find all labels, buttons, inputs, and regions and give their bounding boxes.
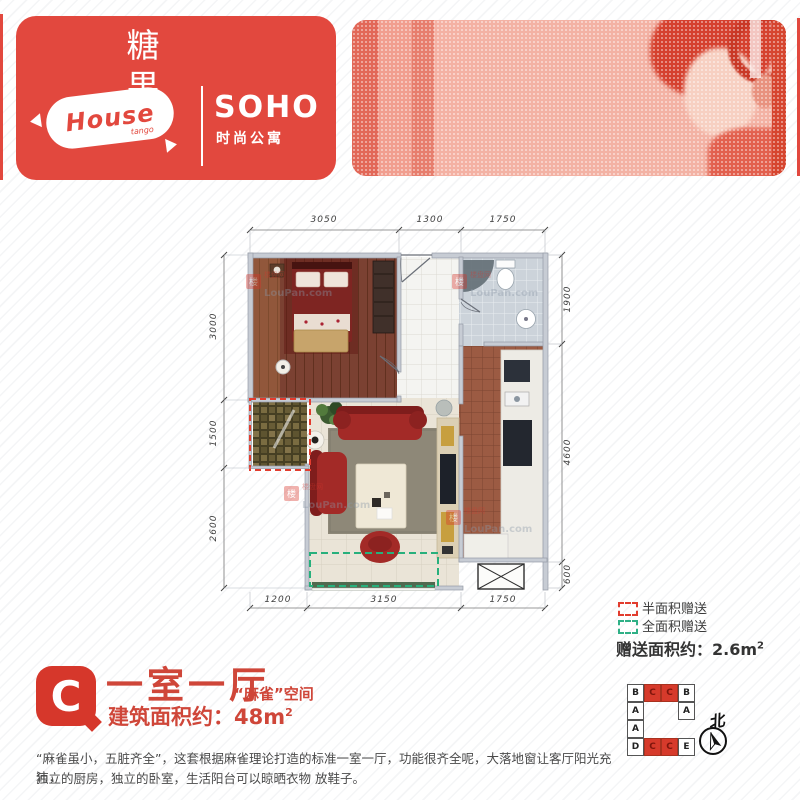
house-logo-subtext: tango: [130, 125, 154, 137]
candy-wrapper-right-icon: [165, 137, 178, 152]
dimension-label: 1500: [209, 411, 219, 455]
dimension-label: 3150: [362, 595, 406, 605]
keyplan-cell: E: [678, 738, 695, 756]
candy-wrapper-left-icon: [29, 113, 42, 128]
half-gift-label: 半面积赠送: [642, 598, 707, 617]
flue-shaft: [478, 564, 524, 589]
brand-logo-card: 糖果 er House tango SOHO 时尚公寓: [16, 16, 336, 180]
dimension-label: 1200: [256, 595, 300, 605]
dimension-label: 3000: [209, 304, 219, 348]
full-gift-swatch: [618, 620, 638, 634]
watermark-en: LouPan.com: [470, 288, 538, 299]
left-edge-accent: [0, 14, 3, 180]
watermark: 楼 楼盘网LouPan.com: [284, 474, 370, 512]
keyplan-cell: A: [627, 720, 644, 738]
watermark-cn: 楼盘网: [470, 271, 491, 279]
halftone-overlay: [352, 20, 786, 176]
watermark-en: LouPan.com: [302, 500, 370, 511]
house-logo-badge: House tango: [43, 84, 176, 151]
balcony: [253, 402, 307, 466]
watermark: 楼 楼盘网LouPan.com: [446, 498, 532, 536]
unit-area: 建筑面积约：48m2: [108, 701, 293, 731]
keyplan-cell: B: [678, 684, 695, 702]
watermark-logo-icon: 楼: [284, 486, 299, 501]
flyer-page: 糖果 er House tango SOHO 时尚公寓: [0, 0, 800, 800]
dimension-label: 1750: [481, 215, 525, 225]
keyplan-cell-highlight: C: [661, 738, 678, 756]
watermark: 楼 楼盘网LouPan.com: [246, 262, 332, 300]
watermark-logo-icon: 楼: [246, 274, 261, 289]
watermark-logo-icon: 楼: [452, 274, 467, 289]
watermark-en: LouPan.com: [264, 288, 332, 299]
keyplan-cell: D: [627, 738, 644, 756]
watermark: 楼 楼盘网LouPan.com: [452, 262, 538, 300]
gift-area-text: 赠送面积约：2.6m2: [616, 636, 764, 660]
half-gift-swatch: [618, 602, 638, 616]
keyplan-cell-highlight: C: [644, 684, 661, 702]
compass-icon: [699, 727, 727, 755]
watermark-logo-icon: 楼: [446, 510, 461, 525]
unit-description-line2: 独立的厨房，独立的卧室，生活阳台可以晾晒衣物 放鞋子。: [36, 768, 636, 787]
watermark-en: LouPan.com: [464, 524, 532, 535]
keyplan-cell: A: [678, 702, 695, 720]
dimension-label: 3050: [302, 215, 346, 225]
keyplan-cell-highlight: C: [644, 738, 661, 756]
dimension-label: 600: [563, 552, 573, 596]
keyplan-cell-highlight: C: [661, 684, 678, 702]
keyplan-cell: B: [627, 684, 644, 702]
soho-logo-subtext: 时尚公寓: [216, 128, 284, 148]
dimension-label: 1900: [563, 277, 573, 321]
watermark-cn: 楼盘网: [264, 271, 285, 279]
dimension-label: 1300: [408, 215, 452, 225]
hero-photo: [352, 20, 786, 176]
soho-logo-text: SOHO: [214, 90, 320, 125]
dimension-label: 4600: [563, 430, 573, 474]
watermark-cn: 楼盘网: [464, 507, 485, 515]
logo-divider: [201, 86, 203, 166]
unit-badge: C: [36, 666, 96, 726]
dimension-label: 1750: [481, 595, 525, 605]
dimension-label: 2600: [209, 506, 219, 550]
keyplan-cell: A: [627, 702, 644, 720]
keyplan: B C C B A A A D C C E: [627, 684, 695, 756]
full-gift-label: 全面积赠送: [642, 616, 707, 635]
watermark-cn: 楼盘网: [302, 483, 323, 491]
